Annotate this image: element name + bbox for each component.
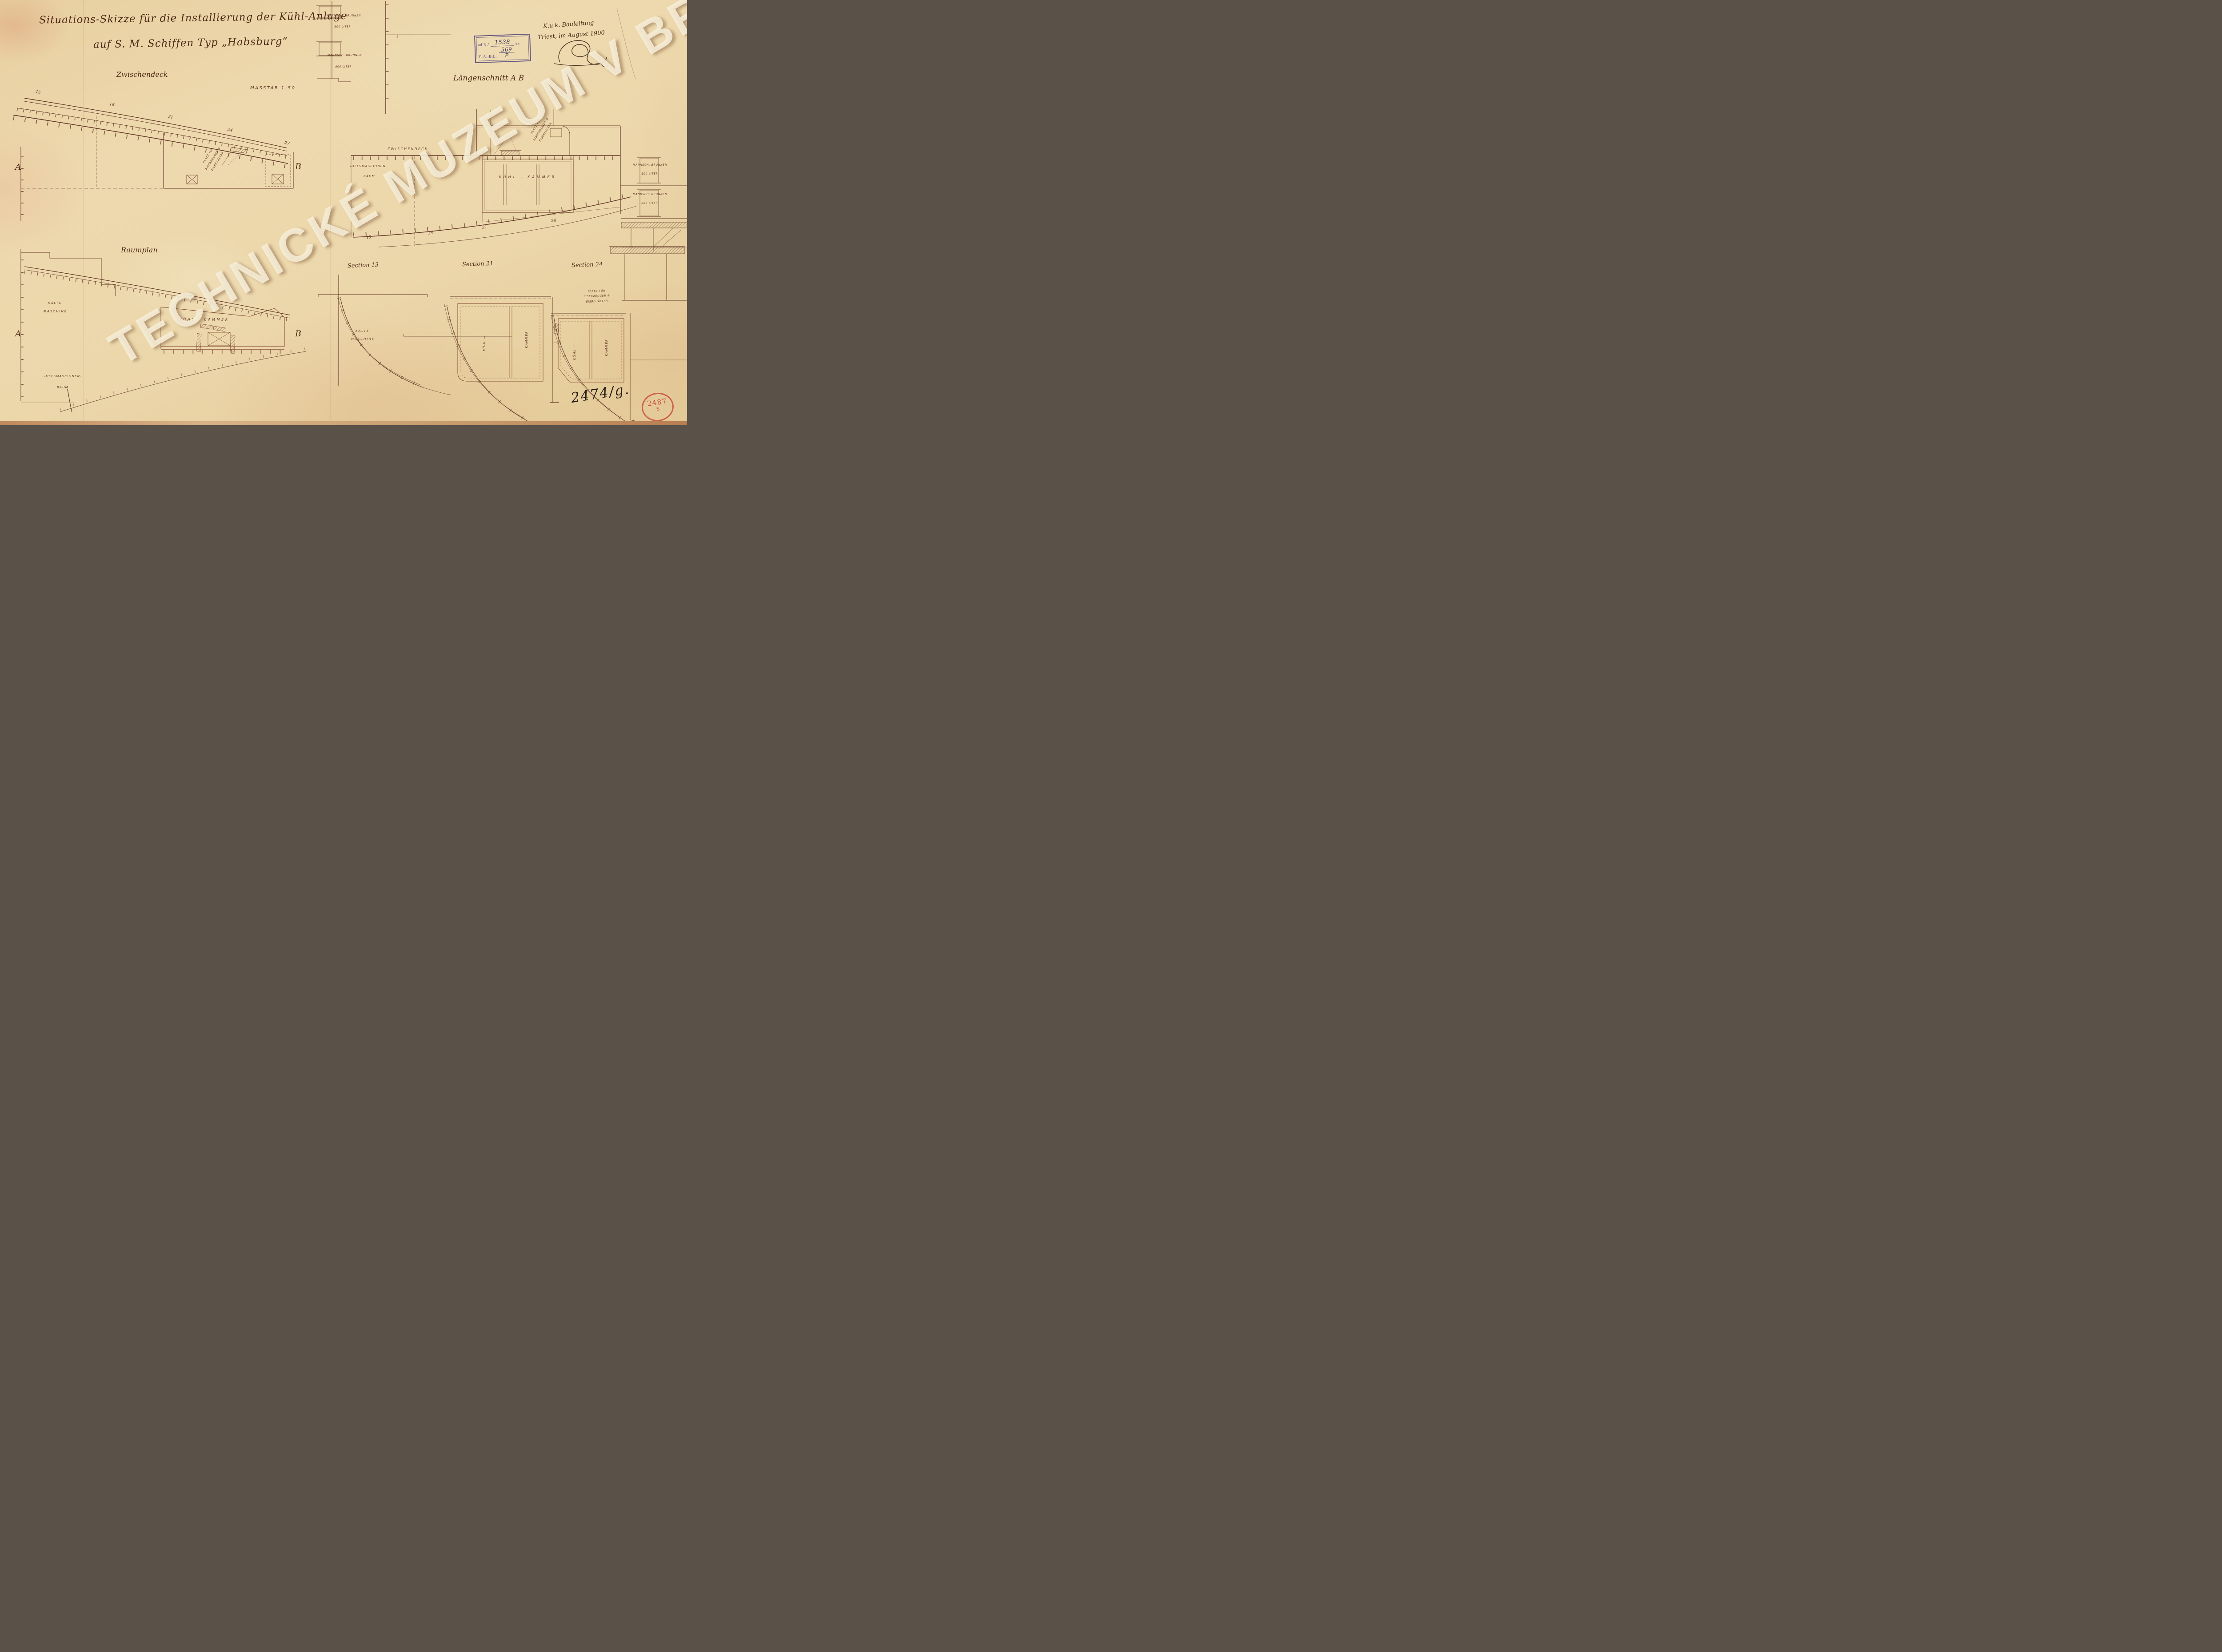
- frame-number: 21: [168, 115, 173, 120]
- view-label-raumplan: Raumplan: [121, 246, 158, 254]
- tank-capacity-label: 800 LITER: [635, 202, 665, 205]
- platz-fuer-eiserzeuger-label: PLATZ FÜR EISERZEUGER & EISBEHÄLTER: [572, 288, 621, 305]
- scale-label: MASSTAB 1:50: [250, 86, 296, 91]
- registry-stamp-box: ad N.º 1538 ex T. A.-B.L. 569 P: [474, 34, 531, 63]
- section-mark-b-zwischendeck: B: [295, 162, 301, 172]
- room-label-kuehl-vertical: KÜHL —: [483, 327, 486, 359]
- frame-number: 18: [109, 102, 115, 108]
- room-label-kaelte: KÄLTE: [48, 301, 62, 305]
- room-label-kammer-vertical: KAMMER: [605, 332, 608, 363]
- stamp-tabl-denominator: P: [499, 52, 515, 58]
- room-label-kaelte: KÄLTE: [356, 329, 370, 333]
- tank-label: MANNSCH. BRUNNEN: [633, 164, 667, 167]
- frame-number: 15: [366, 235, 372, 240]
- frame-number: 21: [482, 225, 488, 230]
- tank-capacity-label: 800 LITER: [635, 172, 665, 176]
- stamp-tabl-label: T. A.-B.L.: [478, 54, 497, 59]
- frame-number: 18: [428, 231, 433, 235]
- view-label-section21: Section 21: [462, 260, 494, 268]
- paper-bottom-edge: [0, 421, 687, 425]
- tank-label: MANNSCH. BRUNNEN: [633, 193, 667, 196]
- room-label-kuehl-vertical: KÜHL —: [573, 336, 576, 367]
- scanned-blueprint-sheet: Situations-Skizze für die Installierung …: [0, 0, 687, 425]
- view-label-section24: Section 24: [571, 261, 603, 269]
- section-mark-b-raumplan: B: [295, 329, 301, 339]
- zwischendeck-plan: [13, 98, 293, 221]
- frame-number: 24: [227, 128, 233, 133]
- stamp-ad-no-value: 1538: [491, 39, 514, 47]
- view-label-laengenschnitt: Längenschnitt A B: [453, 74, 524, 83]
- view-label-zwischendeck: Zwischendeck: [116, 70, 168, 79]
- section-mark-a-raumplan: A: [15, 329, 21, 339]
- section-21-drawing: [444, 296, 559, 421]
- room-label-hilfsmaschinen: HILFSMASCHINEN-: [44, 375, 82, 378]
- room-label-maschine: MASCHINE: [44, 310, 67, 313]
- room-label-raum: RAUM: [57, 386, 68, 389]
- stamp-ad-no-label: ad N.º: [478, 42, 489, 47]
- frame-number: 15: [35, 90, 41, 95]
- paper-fold: [330, 0, 332, 425]
- room-label-kuehl-kammer: KÜHL - KAMMER: [487, 175, 569, 179]
- tank-label: MANNSCH. BRUNNEN: [328, 54, 361, 57]
- tank-capacity-label: 800 LITER: [328, 25, 358, 28]
- tank-capacity-label: 800 LITER: [328, 65, 359, 68]
- frame-number: 24: [551, 218, 556, 223]
- paper-fold: [83, 0, 84, 425]
- view-label-section13: Section 13: [348, 262, 379, 269]
- frame-number: 27: [284, 141, 290, 146]
- kuehl-kammer-box: [482, 156, 573, 212]
- room-label-maschine: MASCHINE: [351, 337, 375, 341]
- stamp-ex-label: ex: [516, 41, 520, 45]
- room-label-kammer-vertical: KAMMER: [525, 324, 528, 355]
- section-mark-a-zwischendeck: A: [15, 162, 21, 172]
